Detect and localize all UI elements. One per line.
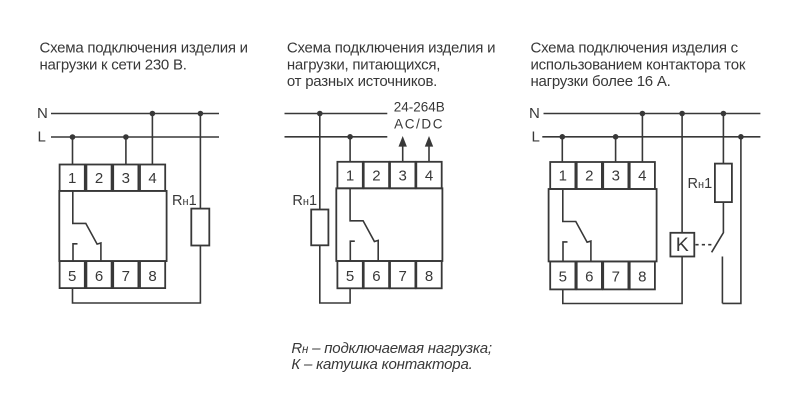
svg-text:8: 8 bbox=[148, 268, 156, 285]
svg-text:4: 4 bbox=[638, 168, 646, 185]
svg-text:AC/DC: AC/DC bbox=[394, 116, 444, 131]
svg-text:8: 8 bbox=[425, 268, 433, 285]
svg-text:2: 2 bbox=[95, 170, 103, 187]
svg-text:6: 6 bbox=[585, 268, 593, 285]
svg-text:4: 4 bbox=[148, 170, 156, 187]
svg-text:Схема подключения изделия и: Схема подключения изделия и bbox=[287, 40, 495, 57]
svg-text:Rн – подключаемая нагрузка;: Rн – подключаемая нагрузка; bbox=[291, 340, 492, 357]
svg-text:7: 7 bbox=[122, 268, 130, 285]
svg-text:2: 2 bbox=[585, 168, 593, 185]
svg-text:5: 5 bbox=[346, 268, 354, 285]
svg-text:5: 5 bbox=[559, 268, 567, 285]
svg-text:5: 5 bbox=[68, 268, 76, 285]
svg-text:нагрузки, питающихся,: нагрузки, питающихся, bbox=[287, 56, 440, 73]
svg-text:Rн1: Rн1 bbox=[292, 193, 317, 209]
svg-text:3: 3 bbox=[122, 170, 130, 187]
svg-text:4: 4 bbox=[425, 167, 433, 184]
svg-text:2: 2 bbox=[372, 167, 380, 184]
svg-text:Схема подключения изделия с: Схема подключения изделия с bbox=[531, 40, 739, 57]
svg-text:Rн1: Rн1 bbox=[688, 176, 713, 192]
svg-text:нагрузки более 16 А.: нагрузки более 16 А. bbox=[531, 73, 671, 90]
svg-text:1: 1 bbox=[559, 168, 567, 185]
svg-text:нагрузки к сети 230 В.: нагрузки к сети 230 В. bbox=[40, 56, 187, 73]
svg-text:К – катушка контактора.: К – катушка контактора. bbox=[291, 356, 472, 373]
svg-text:7: 7 bbox=[612, 268, 620, 285]
svg-text:N: N bbox=[529, 105, 540, 122]
svg-text:L: L bbox=[38, 129, 46, 146]
svg-text:3: 3 bbox=[399, 167, 407, 184]
svg-text:от разных источников.: от разных источников. bbox=[287, 73, 437, 90]
svg-text:1: 1 bbox=[68, 170, 76, 187]
svg-text:Схема подключения изделия и: Схема подключения изделия и bbox=[40, 40, 248, 57]
svg-text:L: L bbox=[532, 129, 540, 146]
svg-text:3: 3 bbox=[612, 168, 620, 185]
svg-text:использованием контактора ток: использованием контактора ток bbox=[531, 56, 746, 73]
svg-text:6: 6 bbox=[95, 268, 103, 285]
svg-text:Rн1: Rн1 bbox=[172, 193, 197, 209]
svg-text:24-264В: 24-264В bbox=[394, 100, 445, 115]
svg-text:K: K bbox=[676, 234, 689, 256]
svg-text:N: N bbox=[37, 105, 48, 122]
svg-text:1: 1 bbox=[346, 167, 354, 184]
svg-text:6: 6 bbox=[372, 268, 380, 285]
svg-text:7: 7 bbox=[399, 268, 407, 285]
svg-text:8: 8 bbox=[638, 268, 646, 285]
